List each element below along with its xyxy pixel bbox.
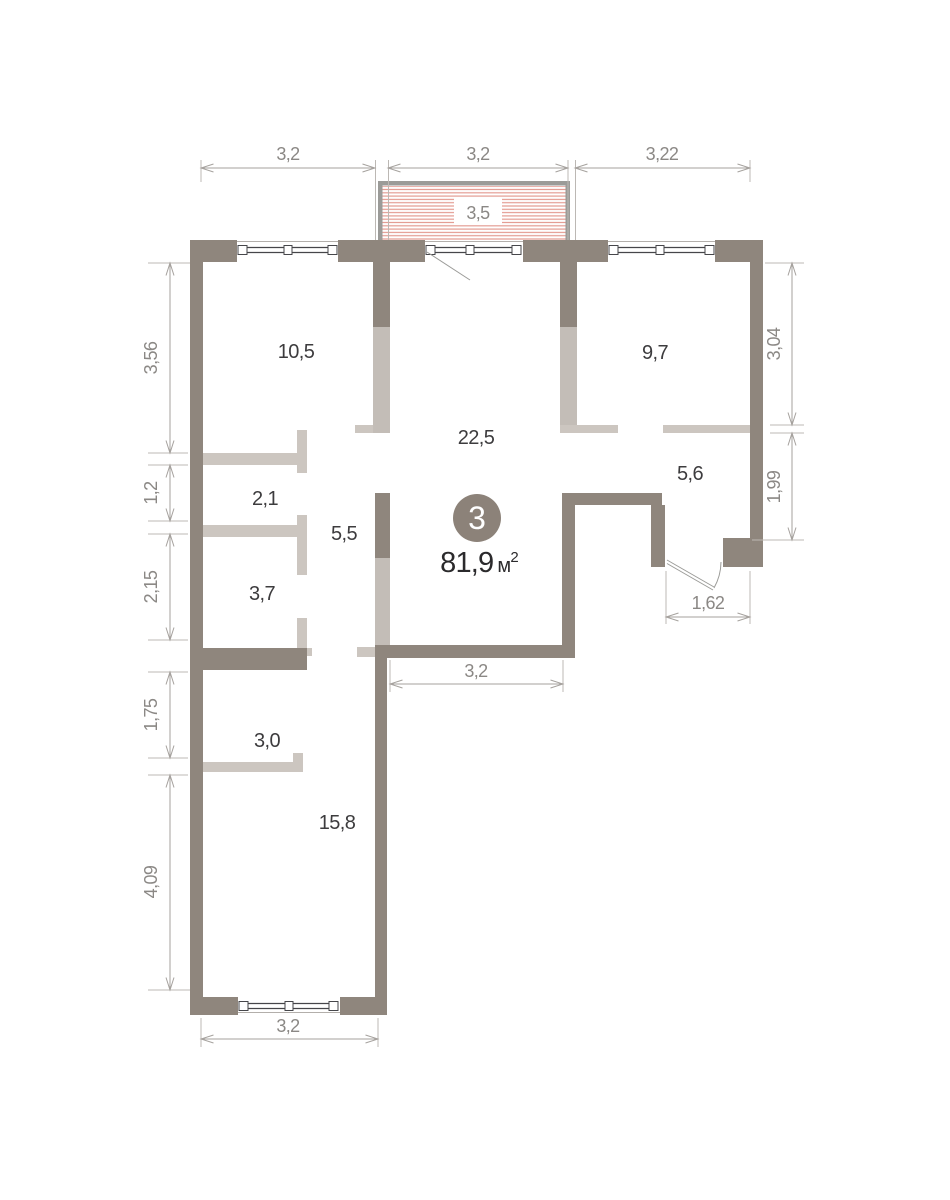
window-mullion — [512, 246, 521, 255]
window — [237, 241, 338, 262]
window — [608, 241, 715, 262]
wall-segment — [190, 997, 238, 1015]
dimensions: 3,2 3,2 3,22 3,56 1,2 2,15 1,75 4,09 3,0… — [141, 144, 804, 1047]
window-mullion — [609, 246, 618, 255]
balcony-door-window — [425, 241, 523, 281]
balcony: 3,5 — [378, 181, 570, 243]
window-mullion — [238, 246, 247, 255]
wall-segment — [575, 493, 662, 505]
room-area-label: 3,0 — [254, 730, 280, 752]
dimension-label: 3,2 — [276, 144, 300, 164]
wall-partition — [297, 430, 307, 473]
room-area-label: 2,1 — [252, 488, 278, 510]
wall-segment — [562, 493, 575, 645]
room-area-label: 3,7 — [249, 583, 275, 605]
dimension-label: 3,2 — [464, 661, 488, 681]
window-mullion — [426, 246, 435, 255]
wall-segment — [338, 240, 425, 262]
wall-segment — [355, 425, 373, 433]
wall-column-light — [560, 327, 577, 425]
total-area-sup: 2 — [510, 549, 518, 566]
balcony-wall-left — [378, 181, 383, 243]
room-labels: 10,5 9,7 22,5 5,6 2,1 5,5 3,7 3,0 15,8 — [249, 341, 703, 834]
wall-partition — [293, 753, 303, 772]
window-mullion — [656, 246, 664, 255]
wall-partition — [203, 762, 293, 772]
wall-segment — [375, 658, 387, 997]
wall-partition — [297, 618, 307, 648]
wall-partition — [203, 525, 297, 537]
wall-column — [373, 262, 390, 327]
wall-segment — [560, 425, 618, 433]
wall-segment — [523, 240, 608, 262]
unit-badge: 3 81,9м2 — [440, 494, 518, 579]
window-mullion — [705, 246, 714, 255]
wall-segment — [723, 538, 750, 567]
dimension-label: 1,75 — [141, 698, 161, 731]
wall-partition — [297, 515, 307, 575]
wall-column-light — [373, 327, 390, 433]
floor-plan-page: 3,5 — [0, 0, 950, 1200]
wall-segment — [375, 493, 390, 558]
room-area-label: 22,5 — [458, 427, 495, 449]
door-leaf — [667, 564, 713, 591]
dimension-label: 4,09 — [141, 865, 161, 898]
room-area-label: 9,7 — [642, 342, 668, 364]
dimension-label: 1,2 — [141, 481, 161, 505]
room-area-label: 10,5 — [278, 341, 315, 363]
unit-number: 3 — [468, 500, 486, 536]
dimension-label: 2,15 — [141, 570, 161, 603]
walls-dark — [190, 240, 763, 1015]
window-mullion — [466, 246, 474, 255]
window-mullion — [284, 246, 292, 255]
entrance-door — [667, 560, 721, 590]
door-swing-arc — [714, 562, 721, 588]
wall-segment — [340, 997, 387, 1015]
window-mullion — [285, 1002, 293, 1011]
window — [238, 998, 340, 1015]
dimension-label: 3,04 — [764, 327, 784, 360]
total-area-value: 81,9 — [440, 547, 493, 579]
wall-column — [560, 262, 577, 327]
room-area-label: 15,8 — [319, 812, 356, 834]
floor-plan-canvas: 3,5 — [0, 0, 950, 1200]
wall-segment — [651, 505, 665, 567]
dimension-label: 3,2 — [276, 1016, 300, 1036]
dimension-label: 3,22 — [646, 144, 679, 164]
wall-partition — [203, 453, 297, 465]
total-area-unit: м — [497, 555, 510, 577]
wall-partition — [307, 648, 312, 656]
room-area-label: 5,6 — [677, 463, 703, 485]
wall-segment — [203, 648, 307, 670]
wall-segment-left-exterior — [190, 240, 203, 1015]
door-leaf — [667, 560, 714, 587]
wall-segment-right-exterior — [750, 240, 763, 567]
dimension-label: 1,62 — [692, 593, 725, 613]
balcony-wall-top — [378, 181, 570, 186]
window-mullion — [328, 246, 337, 255]
total-area-label: 81,9м2 — [440, 547, 518, 579]
window-mullion — [239, 1002, 248, 1011]
room-area-label: 5,5 — [331, 523, 357, 545]
wall-segment — [663, 425, 750, 433]
dimension-label: 1,99 — [764, 470, 784, 503]
wall-segment-light — [375, 558, 390, 645]
dimension-label: 3,2 — [466, 144, 490, 164]
dimension-label: 3,56 — [141, 341, 161, 374]
wall-segment — [375, 645, 575, 658]
wall-partition — [357, 647, 375, 657]
window-mullion — [329, 1002, 338, 1011]
balcony-area-label: 3,5 — [466, 203, 490, 223]
